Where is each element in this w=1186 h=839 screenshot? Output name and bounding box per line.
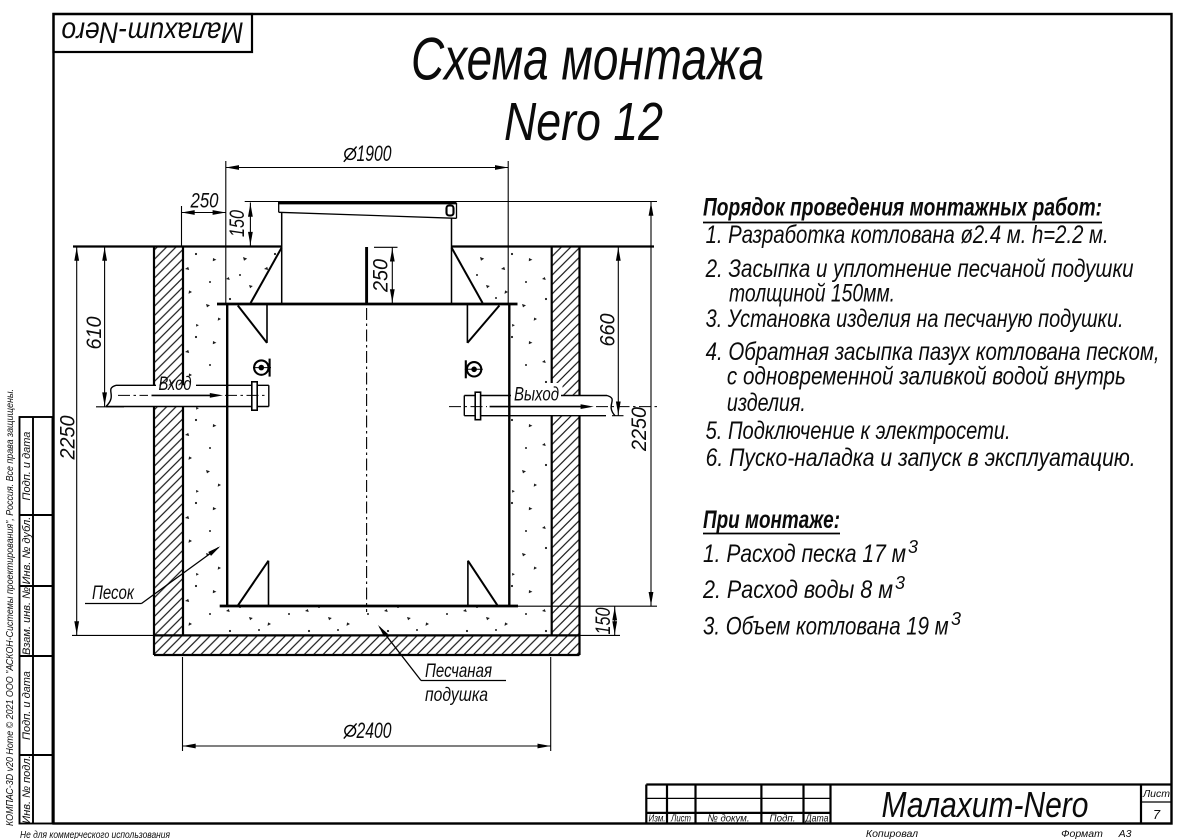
svg-text:№ докум.: № докум. bbox=[708, 813, 750, 825]
svg-text:Копировал: Копировал bbox=[866, 828, 918, 839]
svg-text:Инв. № подл.: Инв. № подл. bbox=[21, 755, 33, 823]
svg-text:Вход: Вход bbox=[159, 374, 192, 395]
svg-text:изделия.: изделия. bbox=[727, 389, 806, 417]
svg-text:Формат: Формат bbox=[1061, 828, 1103, 839]
svg-text:3: 3 bbox=[951, 609, 961, 629]
svg-text:7: 7 bbox=[1153, 807, 1161, 822]
svg-text:Не для коммерческого использов: Не для коммерческого использования bbox=[20, 830, 171, 839]
svg-text:Nero 12: Nero 12 bbox=[504, 92, 663, 152]
svg-text:6. Пуско-наладка и запуск в эк: 6. Пуско-наладка и запуск в эксплуатацию… bbox=[706, 444, 1136, 472]
svg-text:Лист: Лист bbox=[1142, 788, 1170, 800]
svg-text:1. Расход песка 17 м: 1. Расход песка 17 м bbox=[703, 540, 906, 568]
svg-text:610: 610 bbox=[83, 316, 106, 349]
svg-text:Изм.: Изм. bbox=[649, 813, 666, 825]
svg-text:Порядок проведения монтажных р: Порядок проведения монтажных работ: bbox=[703, 194, 1102, 222]
svg-text:подушка: подушка bbox=[425, 685, 488, 706]
svg-text:150: 150 bbox=[592, 607, 615, 634]
svg-text:1900: 1900 bbox=[357, 141, 393, 166]
svg-text:250: 250 bbox=[190, 190, 219, 213]
svg-text:2250: 2250 bbox=[57, 415, 80, 460]
svg-text:Песчаная: Песчаная bbox=[425, 661, 492, 682]
svg-text:При монтаже:: При монтаже: bbox=[703, 506, 840, 534]
svg-text:Подп.: Подп. bbox=[770, 813, 796, 825]
svg-text:Подп. и дата: Подп. и дата bbox=[21, 432, 33, 501]
svg-text:Песок: Песок bbox=[92, 583, 135, 604]
svg-text:Малахит-Nero: Малахит-Nero bbox=[882, 784, 1089, 825]
svg-text:Дата: Дата bbox=[805, 813, 829, 825]
svg-text:3. Установка изделия на песчан: 3. Установка изделия на песчаную подушки… bbox=[706, 305, 1124, 333]
svg-text:Взам. инв. №: Взам. инв. № bbox=[21, 587, 33, 655]
svg-text:Лист: Лист bbox=[670, 813, 691, 825]
svg-text:2. Расход воды 8 м: 2. Расход воды 8 м bbox=[702, 576, 893, 604]
svg-text:3: 3 bbox=[908, 537, 918, 557]
svg-text:Инв. № дубл.: Инв. № дубл. bbox=[21, 517, 33, 585]
svg-text:250: 250 bbox=[370, 259, 393, 293]
svg-text:КОМПАС-3D v20 Home © 2021 ООО: КОМПАС-3D v20 Home © 2021 ООО "АСКОН-Сис… bbox=[5, 389, 16, 826]
svg-text:Малахит-Nero: Малахит-Nero bbox=[62, 16, 244, 49]
svg-text:660: 660 bbox=[597, 313, 620, 346]
svg-text:2250: 2250 bbox=[628, 407, 651, 452]
svg-text:2400: 2400 bbox=[356, 718, 392, 743]
svg-text:3. Объем котлована 19 м: 3. Объем котлована 19 м bbox=[703, 612, 949, 640]
svg-text:Подп. и дата: Подп. и дата bbox=[21, 671, 33, 740]
svg-text:1. Разработка котлована ø2.4 м: 1. Разработка котлована ø2.4 м. h=2.2 м. bbox=[706, 221, 1109, 249]
svg-text:5. Подключение к электросети.: 5. Подключение к электросети. bbox=[706, 417, 1011, 445]
svg-text:с одновременной заливкой водой: с одновременной заливкой водой внутрь bbox=[727, 363, 1126, 391]
svg-text:150: 150 bbox=[226, 210, 249, 237]
svg-text:3: 3 bbox=[895, 573, 905, 593]
svg-text:толщиной 150мм.: толщиной 150мм. bbox=[729, 280, 895, 308]
svg-text:Выход: Выход bbox=[514, 385, 559, 406]
svg-text:Схема монтажа: Схема монтажа bbox=[411, 26, 764, 93]
svg-text:А3: А3 bbox=[1118, 828, 1132, 839]
